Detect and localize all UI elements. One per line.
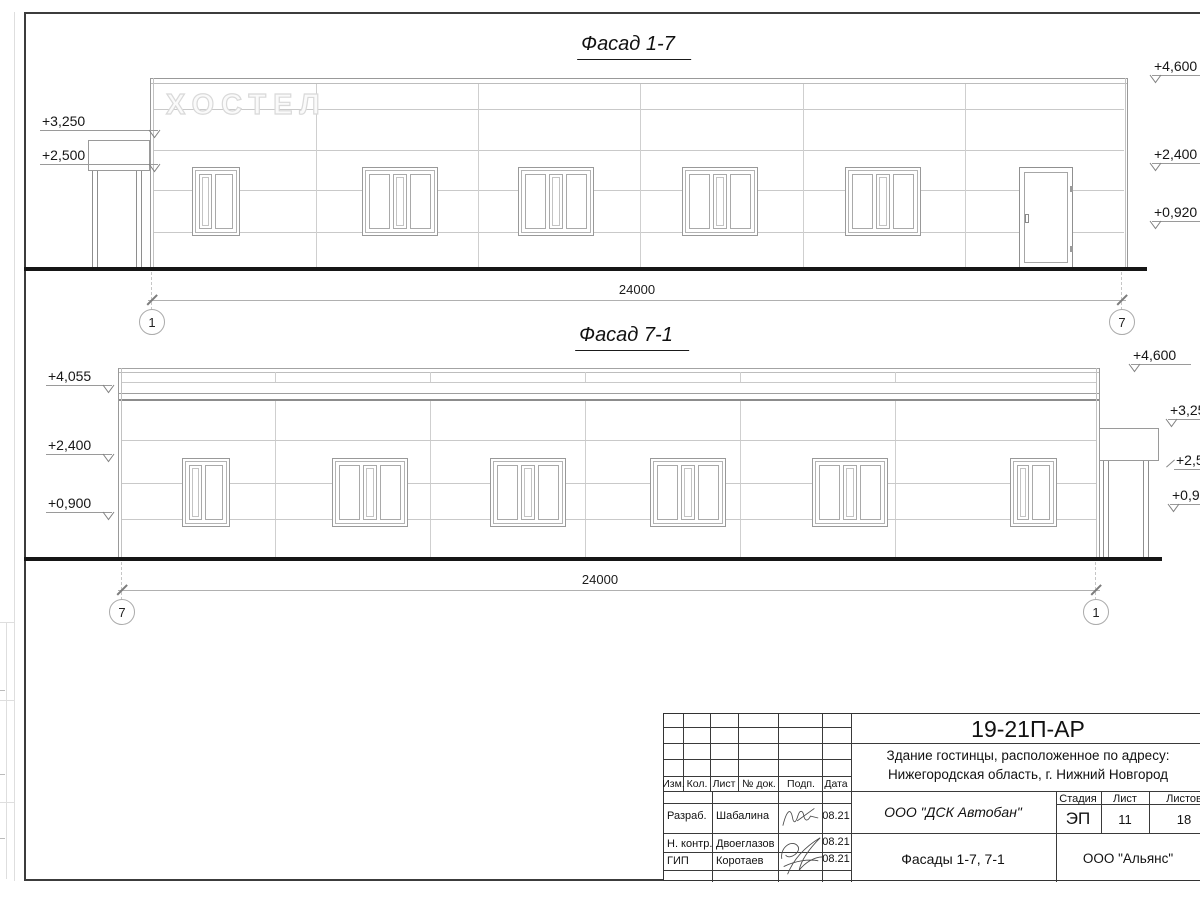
window-pane	[339, 465, 360, 520]
tb-rule	[712, 791, 713, 882]
elevation-arrow-icon	[1149, 162, 1162, 172]
window-3pane	[812, 458, 888, 527]
elevation-value: +0,900	[48, 495, 91, 511]
elevation-mark: +2,500	[40, 147, 158, 165]
line	[118, 372, 1100, 373]
tb-rule	[738, 714, 739, 791]
line	[430, 400, 431, 557]
tb-rule	[664, 727, 851, 728]
elevation-mark: +0,920	[1170, 487, 1200, 505]
elevation-value: +2,400	[1154, 146, 1197, 162]
project-name-line2: Нижегородская область, г. Нижний Новгоро…	[888, 767, 1168, 782]
line	[740, 400, 741, 557]
tb-col-header: Лист	[713, 778, 736, 790]
tb-rule	[1149, 791, 1150, 834]
dimension-value: 24000	[582, 572, 618, 587]
line	[1148, 461, 1149, 557]
window-frame	[653, 461, 723, 524]
line	[121, 382, 1097, 383]
elevation-mark: +2,400	[1152, 146, 1200, 164]
sheets-value: 18	[1177, 812, 1191, 827]
elevation-mark: +2,500	[1174, 452, 1200, 470]
elevation-arrow-icon	[148, 129, 161, 139]
window-pane	[189, 465, 202, 520]
tb-rule	[664, 791, 1200, 792]
line	[118, 368, 1100, 369]
elevation-mark: +3,250	[40, 113, 158, 131]
line	[275, 400, 276, 557]
axis-number: 7	[118, 605, 125, 620]
project-name-line1: Здание гостинцы, расположенное по адресу…	[887, 748, 1170, 763]
line	[275, 372, 276, 382]
window-pane	[657, 465, 678, 520]
axis-bubble: 7	[1109, 309, 1135, 335]
tb-rule	[710, 714, 711, 791]
window-3pane	[490, 458, 566, 527]
sheet-value: 11	[1118, 812, 1132, 827]
window-pane	[698, 465, 719, 520]
window-frame	[335, 461, 405, 524]
signature	[780, 804, 822, 832]
tb-rule	[851, 714, 852, 882]
line	[118, 399, 1100, 401]
window-pane	[860, 465, 881, 520]
axis-number: 1	[148, 315, 155, 330]
line	[122, 483, 1096, 484]
line	[740, 372, 741, 382]
axis-bubble: 1	[139, 309, 165, 335]
tb-name: Шабалина	[716, 810, 769, 822]
elevation-arrow-icon	[148, 163, 161, 173]
entrance-canopy	[1099, 428, 1159, 461]
elevation-value: +2,500	[1176, 452, 1200, 468]
line	[122, 519, 1096, 520]
window-pane	[205, 465, 223, 520]
tb-role: Разраб.	[667, 810, 707, 822]
extension-line	[151, 272, 152, 310]
dimension-value: 24000	[619, 282, 655, 297]
casement	[1020, 468, 1026, 517]
casement	[846, 468, 855, 517]
line	[122, 440, 1096, 441]
tb-rule	[664, 776, 851, 777]
window-pane	[538, 465, 559, 520]
window-2pane	[1010, 458, 1057, 527]
elevation-value: +4,055	[48, 368, 91, 384]
elevation-mark: +4,600	[1152, 58, 1200, 76]
elevation-mark: +4,600	[1131, 347, 1191, 365]
line	[1103, 461, 1104, 557]
elevation-arrow-icon	[1149, 74, 1162, 84]
tb-date: 08.21	[822, 853, 850, 865]
window-pane	[819, 465, 840, 520]
line	[118, 393, 1100, 394]
line	[1096, 368, 1097, 557]
dimension-line	[148, 300, 1126, 301]
casement	[192, 468, 199, 517]
tb-rule	[664, 833, 1200, 834]
line	[585, 400, 586, 557]
window-pane	[681, 465, 696, 520]
ground-line-facade2	[24, 557, 1162, 561]
tb-role: ГИП	[667, 855, 689, 867]
drawing-sheet: Фасад 1-7 Фасад 7-1 ХОСТЕЛ +3,250 +2,500…	[0, 0, 1200, 900]
elevation-mark: +0,900	[46, 495, 112, 513]
elevation-arrow-icon	[1149, 220, 1162, 230]
company-name: ООО "ДСК Автобан"	[884, 804, 1022, 820]
stage-value: ЭП	[1066, 809, 1090, 829]
elevation-value: +2,400	[48, 437, 91, 453]
elevation-arrow-icon	[102, 511, 115, 521]
elevation-value: +2,500	[42, 147, 85, 163]
window-pane	[380, 465, 401, 520]
elevation-mark: +3,250	[1168, 402, 1200, 420]
window-pane	[497, 465, 518, 520]
drawing-title: Фасады 1-7, 7-1	[901, 851, 1005, 867]
window-pane	[521, 465, 536, 520]
tb-role: Н. контр.	[667, 838, 712, 850]
line	[1108, 461, 1109, 557]
tb-name: Двоеглазов	[716, 838, 774, 850]
window-3pane	[650, 458, 726, 527]
window-frame	[185, 461, 227, 524]
elevation-mark: +4,055	[46, 368, 112, 386]
elevation-arrow-icon	[102, 384, 115, 394]
elevation-arrow-icon	[1128, 363, 1141, 373]
sheets-label: Листов	[1166, 793, 1200, 805]
casement	[524, 468, 533, 517]
window-frame	[493, 461, 563, 524]
window-pane	[363, 465, 378, 520]
window-2pane	[182, 458, 230, 527]
line	[1099, 368, 1100, 557]
elevation-mark: +0,920	[1152, 204, 1200, 222]
signature	[776, 832, 826, 880]
tb-col-header: Изм.	[662, 778, 685, 790]
line	[895, 400, 896, 557]
window-frame	[815, 461, 885, 524]
tb-name: Коротаев	[716, 855, 764, 867]
tb-rule	[664, 759, 851, 760]
sheet-label: Лист	[1113, 793, 1137, 805]
extension-line	[121, 562, 122, 600]
tb-rule	[1101, 791, 1102, 834]
tb-col-header: Кол.	[687, 778, 708, 790]
casement	[366, 468, 375, 517]
window-pane	[1032, 465, 1050, 520]
tb-col-header: Дата	[824, 778, 847, 790]
line	[118, 368, 119, 557]
line	[585, 372, 586, 382]
elevation-value: +0,920	[1154, 204, 1197, 220]
extension-line	[1121, 272, 1122, 310]
extension-line	[1095, 562, 1096, 600]
dimension-line	[118, 590, 1100, 591]
tb-rule	[664, 743, 1200, 744]
company2-name: ООО "Альянс"	[1083, 851, 1173, 866]
window-3pane	[332, 458, 408, 527]
ground-line-facade1	[24, 267, 1147, 271]
axis-number: 1	[1092, 605, 1099, 620]
axis-number: 7	[1118, 315, 1125, 330]
tb-col-header: Подп.	[787, 778, 815, 790]
line	[430, 372, 431, 382]
axis-bubble: 7	[109, 599, 135, 625]
tb-date: 08.21	[822, 836, 850, 848]
tb-date: 08.21	[822, 810, 850, 822]
elevation-value: +4,600	[1133, 347, 1176, 363]
elevation-value: +3,250	[1170, 402, 1200, 418]
line	[121, 368, 122, 557]
elevation-mark: +2,400	[46, 437, 112, 455]
elevation-arrow-icon	[102, 453, 115, 463]
elevation-arrow-icon	[1165, 418, 1178, 428]
axis-bubble: 1	[1083, 599, 1109, 625]
window-pane	[843, 465, 858, 520]
window-pane	[1017, 465, 1029, 520]
line	[895, 372, 896, 382]
tb-rule	[664, 803, 851, 804]
title-block: 19-21П-АР Здание гостинцы, расположенное…	[663, 713, 1200, 881]
line	[1143, 461, 1144, 557]
elevation-value: +3,250	[42, 113, 85, 129]
tb-col-header: № док.	[742, 778, 776, 790]
window-frame	[1013, 461, 1054, 524]
elevation-arrow-icon	[1167, 503, 1180, 513]
elevation-value: +0,920	[1172, 487, 1200, 503]
elevation-value: +4,600	[1154, 58, 1197, 74]
document-number: 19-21П-АР	[971, 716, 1085, 743]
stage-label: Стадия	[1059, 793, 1097, 805]
casement	[684, 468, 693, 517]
